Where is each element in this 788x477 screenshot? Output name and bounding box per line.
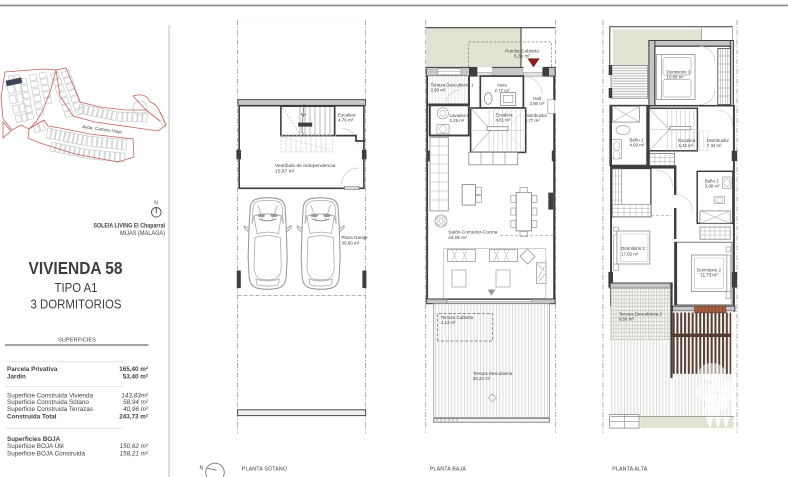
- svg-text:TIPO A1: TIPO A1: [55, 281, 98, 295]
- svg-text:Superficies BOJA: Superficies BOJA: [7, 436, 61, 443]
- svg-text:7,34 m²: 7,34 m²: [707, 143, 722, 148]
- svg-text:Superficie BOJA Útil: Superficie BOJA Útil: [7, 441, 64, 450]
- svg-text:Superficie Construida Terrazas: Superficie Construida Terrazas: [7, 406, 93, 413]
- svg-text:SUPERFICIES: SUPERFICIES: [58, 338, 96, 344]
- svg-text:Construida Total: Construida Total: [7, 413, 57, 420]
- svg-text:SOLEIA LIVING El Chaparral: SOLEIA LIVING El Chaparral: [94, 223, 166, 230]
- svg-text:11,73 m²: 11,73 m²: [700, 273, 718, 278]
- svg-text:Vestíbulo de Independencia: Vestíbulo de Independencia: [275, 163, 336, 169]
- svg-text:4,81 m²: 4,81 m²: [496, 118, 511, 123]
- svg-text:N: N: [154, 201, 158, 207]
- svg-text:30,90 m²: 30,90 m²: [342, 240, 360, 245]
- svg-text:4,13 m²: 4,13 m²: [441, 320, 456, 325]
- svg-text:17,02 m²: 17,02 m²: [621, 251, 639, 256]
- svg-text:158,21 m²: 158,21 m²: [120, 450, 149, 457]
- svg-text:4,42 m²: 4,42 m²: [678, 143, 693, 148]
- svg-text:6,69 m²: 6,69 m²: [619, 317, 634, 322]
- svg-text:Dormitorio 3: Dormitorio 3: [667, 69, 691, 74]
- svg-text:40,96 m²: 40,96 m²: [123, 406, 149, 413]
- svg-text:Plaza Garaje: Plaza Garaje: [342, 235, 369, 240]
- svg-text:53,40 m²: 53,40 m²: [123, 373, 148, 380]
- svg-text:4,76 m²: 4,76 m²: [338, 118, 354, 123]
- svg-text:Dormitorio 1: Dormitorio 1: [621, 246, 645, 251]
- svg-text:PLANTA ALTA: PLANTA ALTA: [612, 466, 648, 472]
- svg-text:6,31 m²: 6,31 m²: [514, 54, 530, 59]
- svg-text:3 DORMITORIOS: 3 DORMITORIOS: [31, 298, 122, 312]
- svg-text:0,77 m²: 0,77 m²: [525, 118, 540, 123]
- svg-text:MIJAS (MALAGA): MIJAS (MALAGA): [120, 230, 165, 237]
- svg-text:VIVIENDA 58: VIVIENDA 58: [29, 258, 123, 278]
- svg-text:36,22 m²: 36,22 m²: [473, 376, 491, 381]
- svg-text:Parcela Privativa: Parcela Privativa: [7, 366, 58, 373]
- svg-text:Dormitorio 2: Dormitorio 2: [697, 267, 721, 272]
- svg-text:2,90 m²: 2,90 m²: [431, 88, 446, 93]
- svg-text:150,62 m²: 150,62 m²: [120, 443, 149, 450]
- svg-text:10,06 m²: 10,06 m²: [667, 75, 685, 80]
- svg-text:4,90 m²: 4,90 m²: [630, 143, 645, 148]
- svg-text:PLANTA SÓTANO: PLANTA SÓTANO: [242, 465, 287, 472]
- svg-text:Porche Cubierto: Porche Cubierto: [505, 48, 539, 53]
- svg-text:243,73 m²: 243,73 m²: [119, 413, 148, 420]
- svg-text:2,77 m²: 2,77 m²: [495, 88, 510, 93]
- svg-text:PLANTA BAJA: PLANTA BAJA: [430, 466, 467, 472]
- svg-text:15,87 m²: 15,87 m²: [275, 169, 295, 175]
- svg-text:Jardín: Jardín: [7, 373, 26, 380]
- svg-text:2,80 m²: 2,80 m²: [530, 101, 545, 106]
- svg-text:2,26 m²: 2,26 m²: [450, 118, 465, 123]
- svg-text:N: N: [200, 466, 204, 472]
- svg-text:44,05 m²: 44,05 m²: [448, 235, 467, 240]
- svg-text:Salón-Comedor-Cocina: Salón-Comedor-Cocina: [448, 230, 497, 235]
- svg-text:Superficie BOJA Construida: Superficie BOJA Construida: [7, 450, 86, 457]
- svg-text:165,40 m²: 165,40 m²: [119, 366, 148, 373]
- svg-text:3,98 m²: 3,98 m²: [705, 184, 720, 189]
